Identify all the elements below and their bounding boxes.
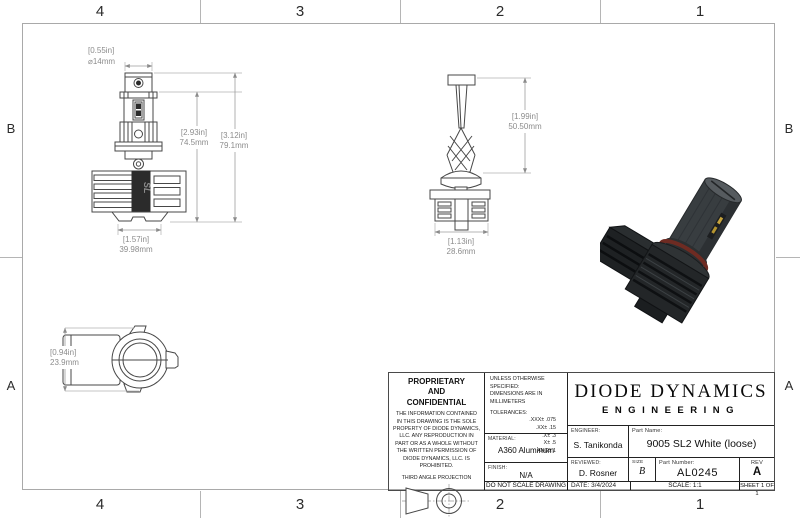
sl-logo-text: SL xyxy=(142,182,152,194)
svg-text:28.6mm: 28.6mm xyxy=(447,247,476,256)
svg-text:23.9mm: 23.9mm xyxy=(50,358,79,367)
material-label: MATERIAL: xyxy=(488,436,564,442)
bulb-3d-render xyxy=(600,152,772,352)
part-number-label: Part Number: xyxy=(659,460,736,466)
dims-note: DIMENSIONS ARE IN MILLIMETERS xyxy=(490,391,542,405)
date-cell: DATE: 3/4/2024 xyxy=(568,482,631,490)
size-label: SIZE xyxy=(632,460,652,465)
company-name: DIODE DYNAMICS xyxy=(568,381,774,403)
engineer-value: S. Tanikonda xyxy=(571,440,625,450)
top-view-drawing: [0.94in] 23.9mm xyxy=(40,318,190,408)
front-view-drawing: SL [0.55in] ⌀14mm [2.93in] 74.5mm [3.12i… xyxy=(80,40,260,255)
projection-label: THIRD ANGLE PROJECTION xyxy=(389,475,484,481)
zone-number: 3 xyxy=(288,496,312,513)
zone-number: 1 xyxy=(688,496,712,513)
scale-cell: SCALE: 1:1 xyxy=(631,482,740,490)
size-cell: SIZE B xyxy=(629,458,656,482)
material-value: A360 Aluminum xyxy=(488,446,564,455)
zone-tick xyxy=(600,0,601,23)
company-division: ENGINEERING xyxy=(568,405,774,416)
part-number-value: AL0245 xyxy=(659,467,736,479)
finish-cell: FINISH: N/A xyxy=(485,463,568,482)
part-number-cell: Part Number: AL0245 xyxy=(656,458,740,482)
bulb-side-outline xyxy=(430,75,490,230)
zone-tick xyxy=(0,257,22,258)
sheet-cell: SHEET 1 OF 1 xyxy=(740,482,774,490)
scale-value: 1:1 xyxy=(693,482,702,489)
engineer-label: ENGINEER: xyxy=(571,428,625,434)
unless-note: UNLESS OTHERWISE SPECIFIED: xyxy=(490,376,545,390)
front-view-dimensions: [0.55in] ⌀14mm [2.93in] 74.5mm [3.12in] … xyxy=(88,46,253,254)
tolerances-label: TOLERANCES: xyxy=(490,410,567,418)
svg-text:[1.99in]: [1.99in] xyxy=(512,112,538,121)
zone-letter: B xyxy=(781,121,797,136)
zone-letter: B xyxy=(3,121,19,136)
reviewed-label: REVIEWED: xyxy=(571,460,625,466)
svg-text:[1.57in]: [1.57in] xyxy=(123,235,149,244)
svg-text:74.5mm: 74.5mm xyxy=(180,138,209,147)
proprietary-title: PROPRIETARY AND CONFIDENTIAL xyxy=(389,377,484,408)
finish-value: N/A xyxy=(488,471,564,480)
bulb-front-outline: SL xyxy=(92,73,186,221)
zone-number: 1 xyxy=(688,3,712,20)
part-name-label: Part Name: xyxy=(632,428,771,434)
proprietary-body: THE INFORMATION CONTAINED IN THIS DRAWIN… xyxy=(389,408,484,470)
zone-tick xyxy=(400,0,401,23)
zone-tick xyxy=(400,491,401,518)
reviewed-value: D. Rosner xyxy=(571,468,625,478)
svg-text:79.1mm: 79.1mm xyxy=(220,141,249,150)
engineer-cell: ENGINEER: S. Tanikonda xyxy=(568,426,629,458)
part-name-value: 9005 SL2 White (loose) xyxy=(632,438,771,450)
svg-text:[1.13in]: [1.13in] xyxy=(448,237,474,246)
rev-cell: REV A xyxy=(740,458,774,482)
title-block: PROPRIETARY AND CONFIDENTIAL THE INFORMA… xyxy=(388,372,775,491)
tolerance-section: UNLESS OTHERWISE SPECIFIED: DIMENSIONS A… xyxy=(485,373,568,434)
svg-text:⌀14mm: ⌀14mm xyxy=(88,57,115,66)
reviewed-cell: REVIEWED: D. Rosner xyxy=(568,458,629,482)
svg-text:[0.55in]: [0.55in] xyxy=(88,46,114,55)
svg-text:50.50mm: 50.50mm xyxy=(508,122,542,131)
engineering-drawing-sheet: 4 3 2 1 4 3 2 1 B A B A xyxy=(0,0,800,518)
date-label: DATE: xyxy=(571,482,589,489)
svg-text:[3.12in]: [3.12in] xyxy=(221,131,247,140)
zone-tick xyxy=(776,257,800,258)
do-not-scale-note: DO NOT SCALE DRAWING xyxy=(485,482,568,490)
zone-number: 2 xyxy=(488,3,512,20)
third-angle-projection-symbol xyxy=(402,484,472,518)
material-cell: MATERIAL: A360 Aluminum xyxy=(485,434,568,463)
part-name-cell: Part Name: 9005 SL2 White (loose) xyxy=(629,426,774,458)
side-view-drawing: [1.99in] 50.50mm [1.13in] 28.6mm xyxy=(415,60,560,260)
svg-text:[2.93in]: [2.93in] xyxy=(181,128,207,137)
scale-label: SCALE: xyxy=(668,482,691,489)
svg-text:39.98mm: 39.98mm xyxy=(119,245,153,254)
zone-number: 2 xyxy=(488,496,512,513)
zone-tick xyxy=(200,491,201,518)
zone-tick xyxy=(200,0,201,23)
proprietary-section: PROPRIETARY AND CONFIDENTIAL THE INFORMA… xyxy=(389,373,485,490)
company-logo: DIODE DYNAMICS ENGINEERING xyxy=(568,373,774,426)
zone-letter: A xyxy=(3,378,19,393)
zone-number: 3 xyxy=(288,3,312,20)
zone-letter: A xyxy=(781,378,797,393)
svg-text:[0.94in]: [0.94in] xyxy=(50,348,76,357)
rev-value: A xyxy=(743,466,771,478)
zone-number: 4 xyxy=(88,3,112,20)
date-value: 3/4/2024 xyxy=(591,482,616,489)
zone-tick xyxy=(600,491,601,518)
size-value: B xyxy=(632,466,652,477)
zone-number: 4 xyxy=(88,496,112,513)
